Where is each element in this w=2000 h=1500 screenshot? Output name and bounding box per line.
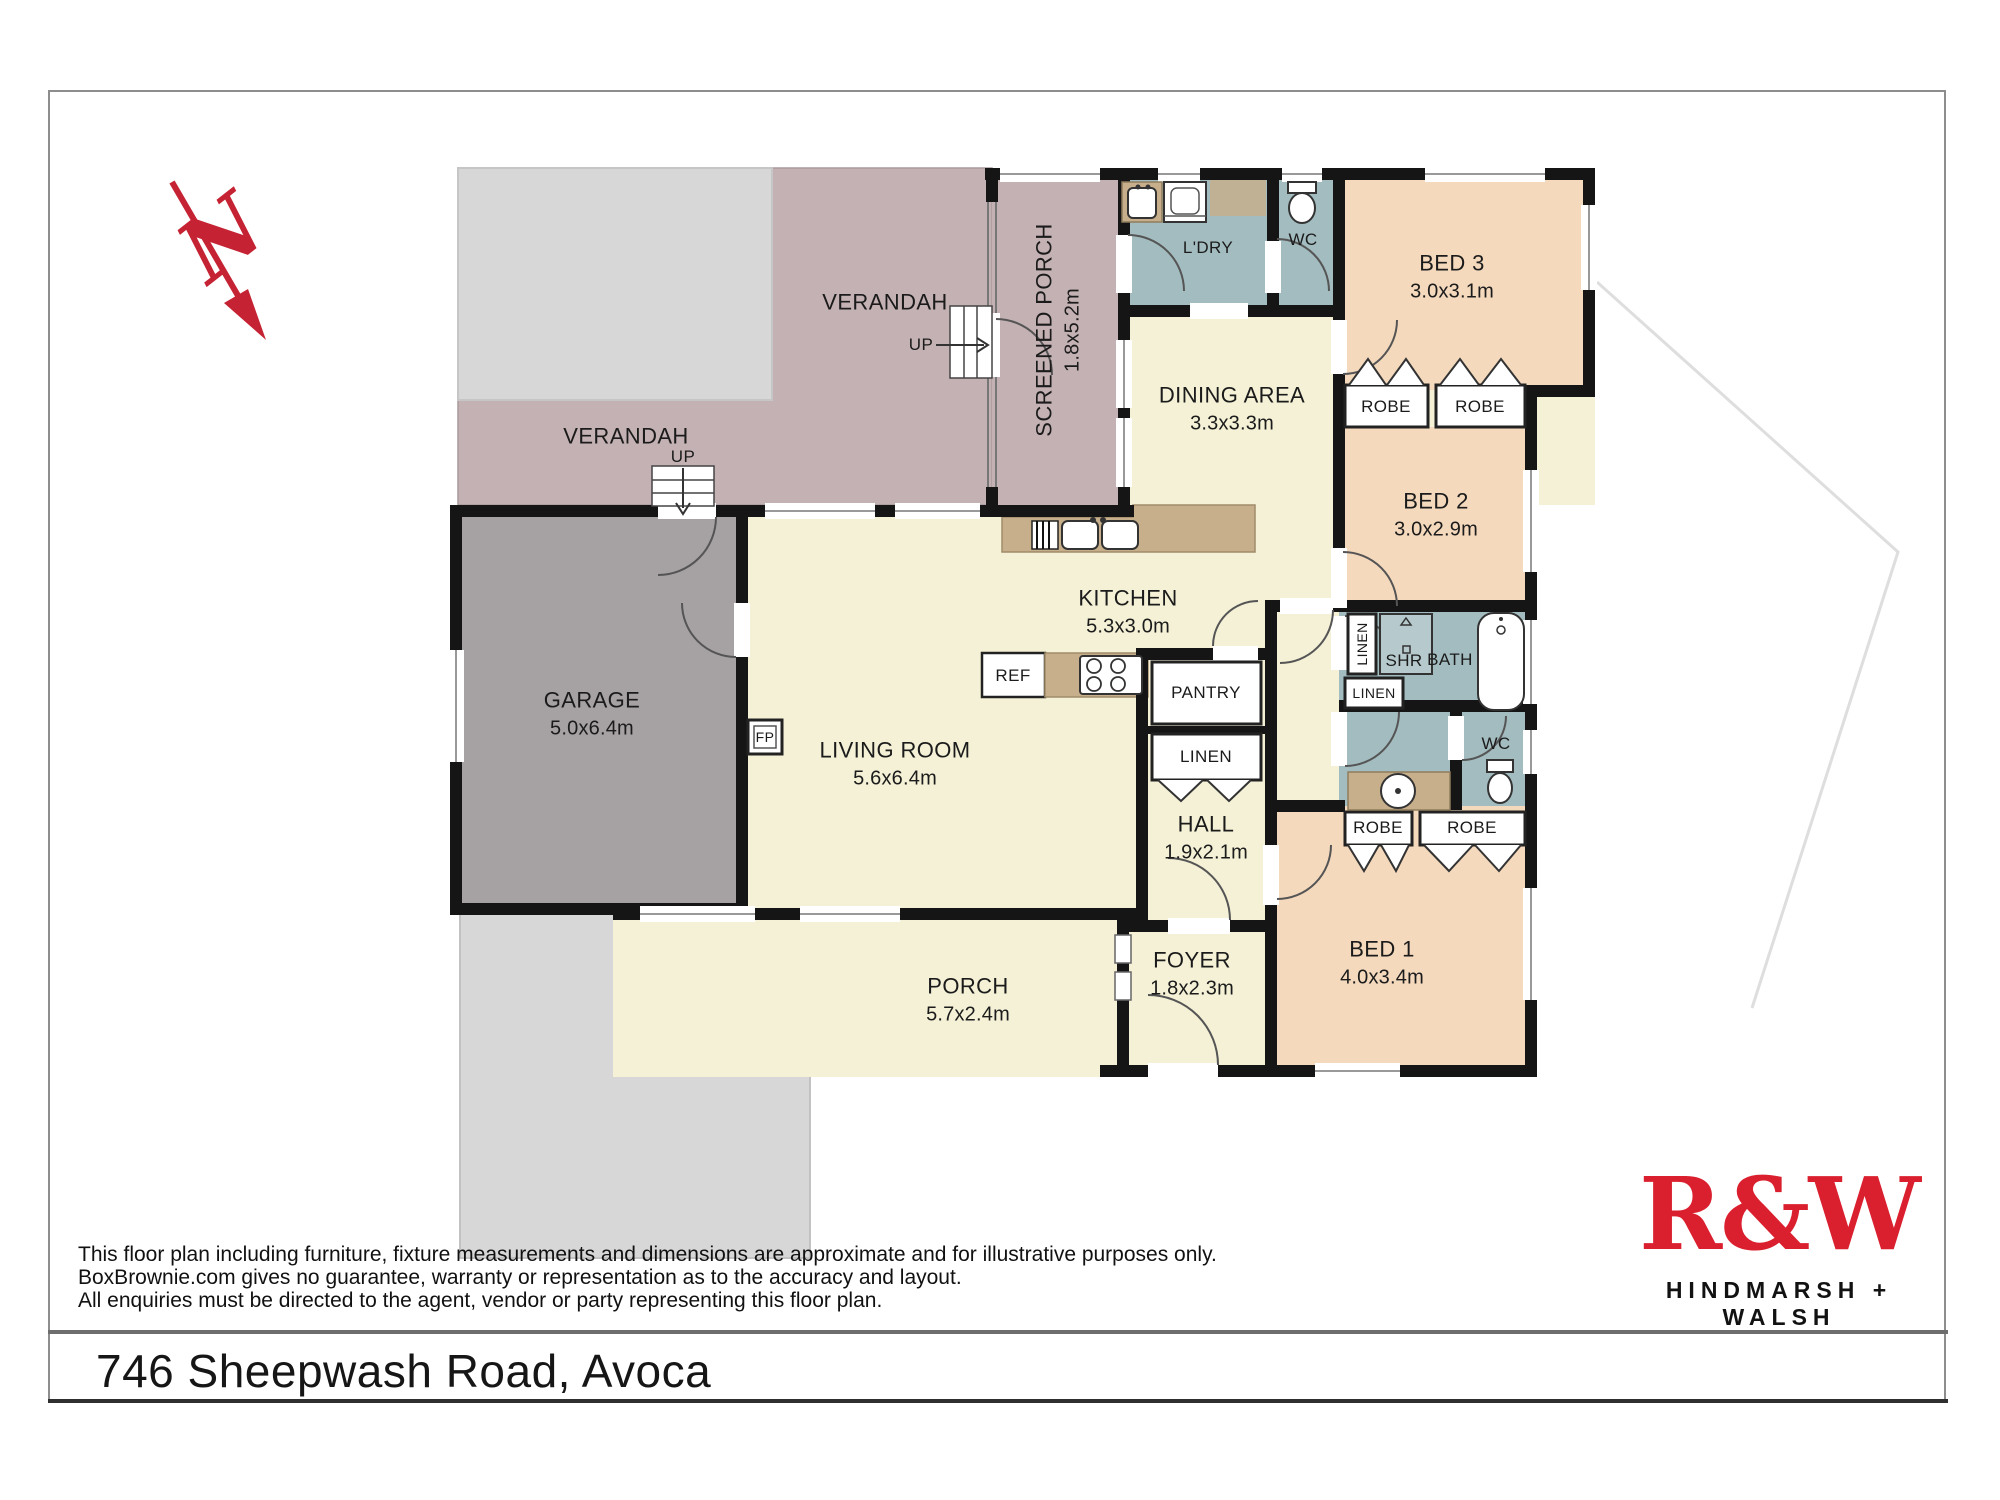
label-robe-bed1-right: ROBE [1447,817,1497,839]
label-ref: REF [995,665,1030,687]
label-bed3: BED 33.0x3.1m [1410,250,1494,305]
label-robe-bed1-left: ROBE [1353,817,1403,839]
label-kitchen: KITCHEN5.3x3.0m [1078,585,1177,640]
label-dining: DINING AREA3.3x3.3m [1159,382,1305,437]
label-wc-ensuite: WC [1481,733,1510,755]
label-linen-bath: LINEN [1353,622,1371,665]
label-robe-bed3-left: ROBE [1361,396,1411,418]
property-address: 746 Sheepwash Road, Avoca [96,1344,711,1398]
label-porch: PORCH5.7x2.4m [926,973,1010,1028]
label-robe-bed3-right: ROBE [1455,396,1505,418]
disclaimer-line-3: All enquiries must be directed to the ag… [78,1289,1217,1312]
label-bed1: BED 14.0x3.4m [1340,936,1424,991]
agency-logo-monogram: R&W [1628,1162,1930,1267]
property-boundary-line [1597,282,1898,1008]
label-screened-porch: SCREENED PORCH 1.8x5.2m [1031,223,1086,436]
label-foyer: FOYER1.8x2.3m [1150,947,1234,1002]
label-linen-mid: LINEN [1352,684,1395,702]
label-hall: HALL1.9x2.1m [1164,811,1248,866]
disclaimer-line-1: This floor plan including furniture, fix… [78,1243,1217,1266]
bottom-border-line [48,1399,1948,1403]
label-garage: GARAGE5.0x6.4m [544,687,641,742]
label-living: LIVING ROOM5.6x6.4m [819,737,970,792]
label-wc-top: WC [1288,229,1317,251]
patio-area [458,168,772,400]
label-shower: SHR [1385,650,1422,672]
label-linen-hall: LINEN [1180,746,1232,768]
label-laundry: L'DRY [1183,237,1233,259]
agency-logo: R&W HINDMARSH + WALSH [1628,1162,1930,1331]
label-bed2: BED 23.0x2.9m [1394,488,1478,543]
toilet-top [1288,182,1316,223]
label-fp: FP [756,728,775,746]
label-up-side: UP [671,446,695,468]
label-up-porch: UP [909,334,933,356]
floor-plan-page: N VERANDAH VERANDAH UP UP SCREENED PORCH… [0,0,2000,1500]
laundry-fixtures [1122,180,1266,222]
label-bath: BATH [1427,649,1473,671]
agency-logo-tagline: HINDMARSH + WALSH [1628,1277,1930,1331]
label-verandah-top: VERANDAH [822,289,947,318]
label-pantry: PANTRY [1171,682,1241,704]
disclaimer-text: This floor plan including furniture, fix… [78,1243,1217,1312]
compass: N [157,172,286,340]
disclaimer-line-2: BoxBrownie.com gives no guarantee, warra… [78,1266,1217,1289]
